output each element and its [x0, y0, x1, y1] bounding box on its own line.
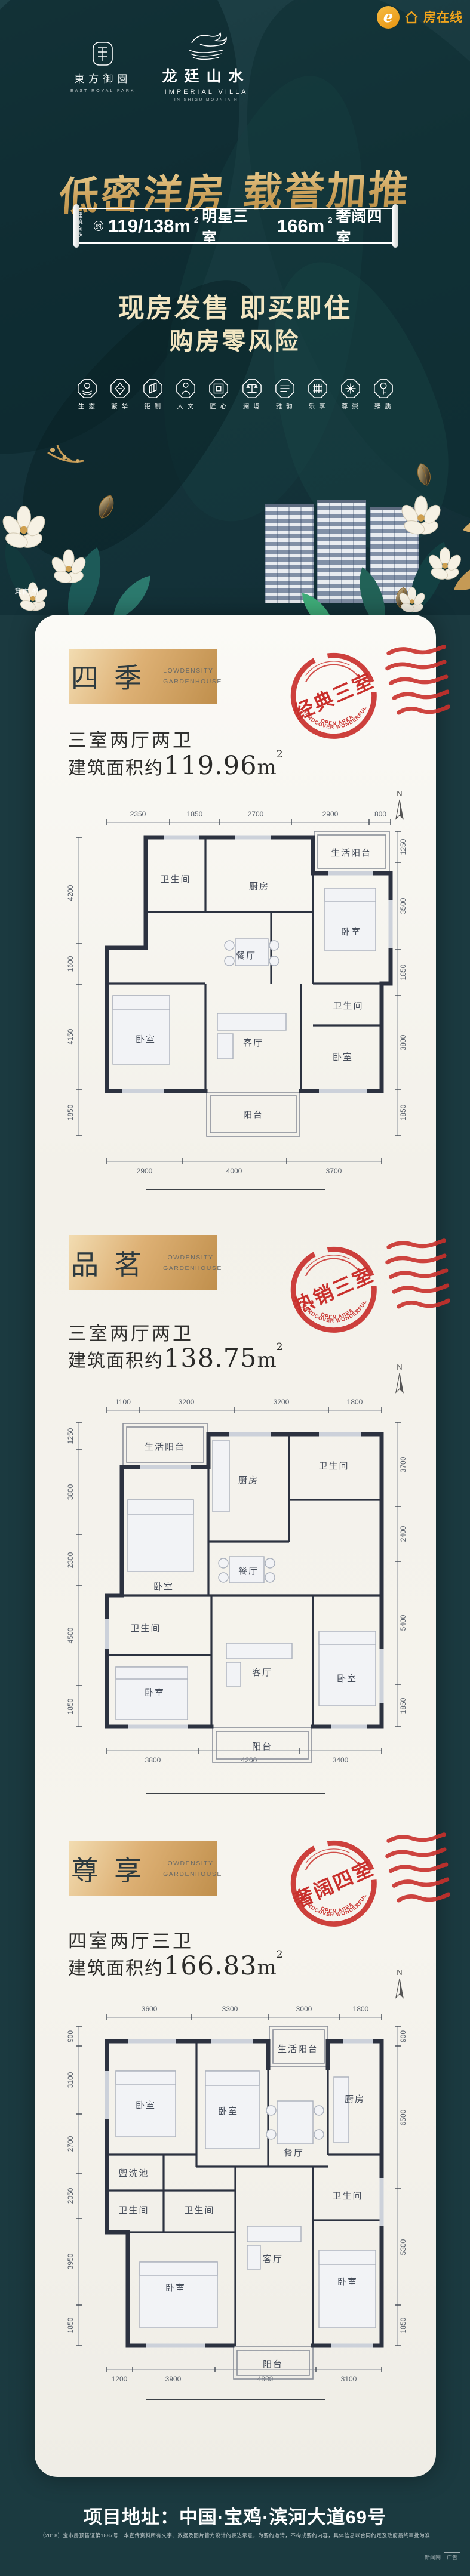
- plan-section-zunxiang: 尊享 LOWDENSITY GARDENHOUSE 奢阔四室 HARDCOVER…: [35, 1794, 436, 2477]
- svg-text:客厅: 客厅: [243, 1038, 263, 1048]
- svg-text:厨房: 厨房: [345, 2094, 365, 2104]
- svg-text:厨房: 厨房: [238, 1475, 259, 1486]
- svg-text:1850: 1850: [66, 1698, 75, 1714]
- feature-prestige: 尊 崇 ···· ····: [335, 378, 366, 415]
- svg-text:2350: 2350: [130, 810, 146, 818]
- plan-layout: 四室两厅三卫: [68, 1926, 193, 1953]
- svg-text:3300: 3300: [222, 2005, 238, 2013]
- footer-section: 项目地址：中国·宝鸡·滨河大道69号 （2018）宝市房预售证第1887号 本宣…: [0, 2477, 470, 2576]
- site-watermark: 新闻网 广告: [425, 2552, 460, 2562]
- plan-badge: 尊享 LOWDENSITY GARDENHOUSE: [69, 1841, 217, 1896]
- svg-text:N: N: [397, 789, 402, 798]
- brand-logos: 東方御園 EAST ROYAL PARK 龙廷山水 IMPERIAL VILLA…: [70, 31, 251, 102]
- svg-text:2400: 2400: [399, 1526, 407, 1542]
- building-tower: [317, 500, 366, 603]
- plan-tagline-2: GARDENHOUSE: [163, 1265, 222, 1272]
- plan-name: 品茗: [62, 1243, 157, 1283]
- svg-text:餐厅: 餐厅: [236, 951, 256, 961]
- floorplan-drawing: 2350 1850 2700 2900 800 4200 1600 4150 1…: [56, 805, 414, 1187]
- banner-prefix: 建筑面积: [77, 213, 90, 239]
- svg-text:3900: 3900: [165, 2375, 182, 2383]
- svg-text:卫生间: 卫生间: [130, 1623, 161, 1634]
- svg-text:2300: 2300: [66, 1552, 75, 1568]
- svg-text:餐厅: 餐厅: [238, 1566, 259, 1576]
- svg-text:1800: 1800: [353, 2005, 369, 2013]
- portal-name: 房在线: [423, 11, 463, 24]
- plan-tagline-2: GARDENHOUSE: [163, 1871, 222, 1878]
- svg-text:卫生间: 卫生间: [160, 874, 191, 885]
- plan-section-siji: 四季 LOWDENSITY GARDENHOUSE 经典三室 HARDCOVER…: [35, 615, 436, 1190]
- logo-east-royal-park: 東方御園 EAST ROYAL PARK: [70, 41, 136, 93]
- hero-slogan-line1: 现房发售 即买即住: [0, 286, 470, 325]
- svg-text:1250: 1250: [66, 1428, 75, 1444]
- legal-disclaimer: （2018）宝市房预售证第1887号 本宣传资料所有文字、数据及图片皆为设计的表…: [0, 2532, 470, 2539]
- feature-prosperity: 繁 华 ···· ····: [105, 378, 136, 415]
- logo-divider: [149, 39, 149, 94]
- svg-text:900: 900: [66, 2030, 75, 2042]
- svg-text:4500: 4500: [66, 1627, 75, 1643]
- svg-text:1850: 1850: [399, 964, 407, 980]
- svg-text:3600: 3600: [142, 2005, 158, 2013]
- portal-e-icon: e: [377, 6, 400, 29]
- logo-secondary-sub1: IMPERIAL VILLA: [165, 88, 248, 95]
- seal-square-icon: [208, 378, 229, 399]
- banner-area-1: 119/138m: [108, 215, 191, 237]
- balance-icon: [242, 378, 262, 399]
- floorplan-drawing: 3600 3300 3000 1800 900 3100 2700 2050 3…: [56, 1999, 414, 2393]
- svg-text:3700: 3700: [326, 1167, 342, 1175]
- svg-text:阳台: 阳台: [252, 1742, 272, 1752]
- floorplan-card: 四季 LOWDENSITY GARDENHOUSE 经典三室 HARDCOVER…: [35, 615, 436, 2477]
- svg-text:5300: 5300: [399, 2239, 407, 2255]
- svg-text:卫生间: 卫生间: [332, 2191, 363, 2201]
- feature-enjoyment: 乐 享 ···· ····: [302, 378, 333, 415]
- svg-text:4200: 4200: [66, 885, 75, 901]
- banner-sup-2: 2: [328, 215, 332, 224]
- project-address: 项目地址：中国·宝鸡·滨河大道69号: [0, 2502, 470, 2529]
- svg-text:6500: 6500: [399, 2109, 407, 2125]
- svg-text:经典三室: 经典三室: [290, 668, 378, 725]
- watermark-text: 新闻网: [425, 2553, 441, 2561]
- svg-text:3800: 3800: [66, 1484, 75, 1500]
- plan-tagline-1: LOWDENSITY: [163, 1860, 222, 1867]
- weave-icon: [308, 378, 328, 399]
- svg-text:1200: 1200: [112, 2375, 128, 2383]
- svg-text:1600: 1600: [66, 956, 75, 972]
- svg-text:N: N: [397, 1363, 402, 1372]
- svg-text:3100: 3100: [66, 2072, 75, 2088]
- svg-text:3200: 3200: [179, 1398, 195, 1406]
- svg-text:3800: 3800: [399, 1034, 407, 1050]
- svg-text:生活阳台: 生活阳台: [331, 848, 371, 858]
- feature-humanity: 人 文 ···· ····: [170, 378, 201, 415]
- banner-area-2: 166m: [277, 215, 324, 237]
- logo-secondary-name: 龙廷山水: [162, 64, 251, 86]
- svg-text:1800: 1800: [347, 1398, 363, 1406]
- svg-text:3950: 3950: [66, 2253, 75, 2269]
- star-burst-icon: [340, 378, 361, 399]
- banner-sup-1: 2: [194, 215, 198, 224]
- plan-tagline-1: LOWDENSITY: [163, 1254, 222, 1261]
- hero-slogan-line2: 购房零风险: [0, 322, 470, 356]
- svg-text:餐厅: 餐厅: [284, 2148, 304, 2158]
- svg-text:阳台: 阳台: [243, 1110, 263, 1120]
- svg-text:卫生间: 卫生间: [333, 1001, 363, 1011]
- banner-approx-circle: 约: [94, 221, 103, 231]
- svg-text:热销三室: 热销三室: [290, 1262, 378, 1318]
- svg-text:卧室: 卧室: [145, 1688, 165, 1698]
- section-divider: [146, 2399, 325, 2400]
- svg-text:2900: 2900: [322, 810, 339, 818]
- plan-layout: 三室两厅两卫: [68, 725, 193, 752]
- plan-layout: 三室两厅两卫: [68, 1318, 193, 1345]
- poster-page: 東方御園 EAST ROYAL PARK 龙廷山水 IMPERIAL VILLA…: [0, 0, 470, 2576]
- svg-text:3200: 3200: [274, 1398, 290, 1406]
- feature-ingenuity: 匠 心 ···· ····: [203, 378, 234, 415]
- key-icon: [373, 378, 394, 399]
- fountain-icon: [77, 378, 97, 399]
- svg-text:3500: 3500: [399, 898, 407, 914]
- logo-imperial-villa: 龙廷山水 IMPERIAL VILLA IN SHIGU MOUNTAIN: [162, 31, 251, 102]
- svg-text:3800: 3800: [145, 1756, 161, 1764]
- svg-text:生活阳台: 生活阳台: [145, 1442, 185, 1452]
- svg-text:5400: 5400: [399, 1614, 407, 1631]
- svg-text:卧室: 卧室: [337, 2277, 358, 2287]
- svg-text:1100: 1100: [115, 1398, 131, 1406]
- plan-badge: 四季 LOWDENSITY GARDENHOUSE: [69, 649, 217, 704]
- svg-text:3700: 3700: [399, 1456, 407, 1472]
- logo-primary-name: 東方御園: [74, 70, 131, 85]
- svg-text:卧室: 卧室: [165, 2283, 186, 2293]
- feature-landscape: 澜 境 ···· ····: [236, 378, 268, 415]
- svg-text:1850: 1850: [399, 1697, 407, 1714]
- hero-section: 東方御園 EAST ROYAL PARK 龙廷山水 IMPERIAL VILLA…: [0, 0, 470, 615]
- svg-text:卧室: 卧室: [337, 1674, 357, 1684]
- svg-text:1850: 1850: [399, 2317, 407, 2333]
- svg-text:卫生间: 卫生间: [118, 2205, 149, 2216]
- lines-icon: [275, 378, 295, 399]
- area-banner-scroll: 建筑面积 约 119/138m 2 明星三室 166m 2 奢阔四室: [76, 208, 396, 244]
- person-icon: [176, 378, 196, 399]
- feature-eco: 生 态 ···· ····: [72, 378, 103, 415]
- svg-text:4150: 4150: [66, 1028, 75, 1044]
- dragon-icon: [183, 31, 230, 62]
- svg-text:2700: 2700: [248, 810, 264, 818]
- svg-text:2900: 2900: [137, 1167, 153, 1175]
- svg-text:800: 800: [374, 810, 386, 818]
- svg-text:厨房: 厨房: [249, 882, 269, 892]
- section-divider: [146, 1189, 325, 1190]
- fan-icon: [143, 378, 163, 399]
- plan-area: 建筑面积约166.83m2: [68, 1951, 283, 1981]
- logo-secondary-sub2: IN SHIGU MOUNTAIN: [174, 98, 238, 102]
- svg-text:卫生间: 卫生间: [318, 1461, 349, 1471]
- portal-logo-fangzaixian: e 房在线: [377, 6, 463, 29]
- svg-text:奢阔四室: 奢阔四室: [290, 1856, 378, 1912]
- svg-text:N: N: [397, 1968, 402, 1977]
- render-disclaimer-note: 意向图: [14, 586, 39, 596]
- svg-text:卧室: 卧室: [136, 1034, 156, 1044]
- building-tower: [265, 504, 314, 603]
- plan-badge: 品茗 LOWDENSITY GARDENHOUSE: [69, 1235, 217, 1290]
- plan-area: 建筑面积约119.96m2: [68, 751, 283, 781]
- section-divider: [146, 1793, 325, 1794]
- stamp-hot-3room: 热销三室 HARDCOVER WONDERFUL OPEN AREA: [272, 1227, 453, 1349]
- banner-seg-2: 奢阔四室: [336, 205, 395, 248]
- floorplan-drawing: 1100 3200 3200 1800 1250 3800 2300 4500 …: [56, 1392, 414, 1774]
- svg-text:3000: 3000: [296, 2005, 312, 2013]
- seal-icon: [90, 41, 116, 67]
- stamp-classic-3room: 经典三室 HARDCOVER WONDERFUL OPEN AREA: [272, 633, 453, 755]
- svg-text:4200: 4200: [241, 1756, 257, 1764]
- svg-text:1850: 1850: [399, 1104, 407, 1120]
- building-tower: [370, 507, 419, 603]
- plan-area: 建筑面积约138.75m2: [68, 1344, 283, 1373]
- svg-text:卧室: 卧室: [333, 1052, 353, 1062]
- svg-text:2050: 2050: [66, 2187, 75, 2204]
- feature-quality: 臻 质 ···· ····: [368, 378, 399, 415]
- feature-elegance: 雅 韵 ···· ····: [269, 378, 300, 415]
- svg-text:3400: 3400: [333, 1756, 349, 1764]
- svg-text:阳台: 阳台: [263, 2359, 283, 2369]
- svg-text:生活阳台: 生活阳台: [278, 2044, 318, 2054]
- logo-primary-subtitle: EAST ROYAL PARK: [70, 89, 136, 93]
- svg-text:客厅: 客厅: [263, 2254, 283, 2264]
- svg-text:卧室: 卧室: [218, 2106, 238, 2116]
- svg-text:盥洗池: 盥洗池: [118, 2168, 149, 2178]
- plan-name: 四季: [62, 657, 157, 696]
- svg-text:900: 900: [399, 2030, 407, 2042]
- plan-section-pinming: 品茗 LOWDENSITY GARDENHOUSE 热销三室 HARDCOVER…: [35, 1190, 436, 1794]
- svg-text:1850: 1850: [66, 2317, 75, 2333]
- feature-craft-scale: 钜 制 ···· ····: [137, 378, 168, 415]
- compass-north: N: [391, 1968, 408, 2002]
- plan-tagline-2: GARDENHOUSE: [163, 678, 222, 685]
- svg-text:1250: 1250: [399, 839, 407, 855]
- building-render: [265, 500, 419, 603]
- svg-text:1850: 1850: [66, 1104, 75, 1120]
- ad-badge: 广告: [444, 2552, 460, 2562]
- banner-seg-1: 明星三室: [202, 205, 261, 248]
- plan-name: 尊享: [62, 1849, 157, 1888]
- stamp-luxury-4room: 奢阔四室 HARDCOVER WONDERFUL OPEN AREA: [272, 1820, 453, 1943]
- gem-icon: [110, 378, 130, 399]
- plan-tagline-1: LOWDENSITY: [163, 667, 222, 674]
- svg-text:客厅: 客厅: [252, 1668, 272, 1678]
- svg-text:1850: 1850: [187, 810, 203, 818]
- svg-text:卧室: 卧室: [341, 927, 361, 937]
- svg-text:2700: 2700: [66, 2136, 75, 2152]
- house-icon: [404, 10, 419, 24]
- svg-text:卧室: 卧室: [153, 1582, 174, 1592]
- svg-text:4000: 4000: [226, 1167, 242, 1175]
- svg-text:卧室: 卧室: [136, 2100, 156, 2110]
- feature-icon-row: 生 态 ···· ···· 繁 华 ···· ···· 钜 制 ···· ···…: [72, 378, 399, 415]
- svg-text:卫生间: 卫生间: [184, 2205, 214, 2216]
- svg-text:3100: 3100: [341, 2375, 357, 2383]
